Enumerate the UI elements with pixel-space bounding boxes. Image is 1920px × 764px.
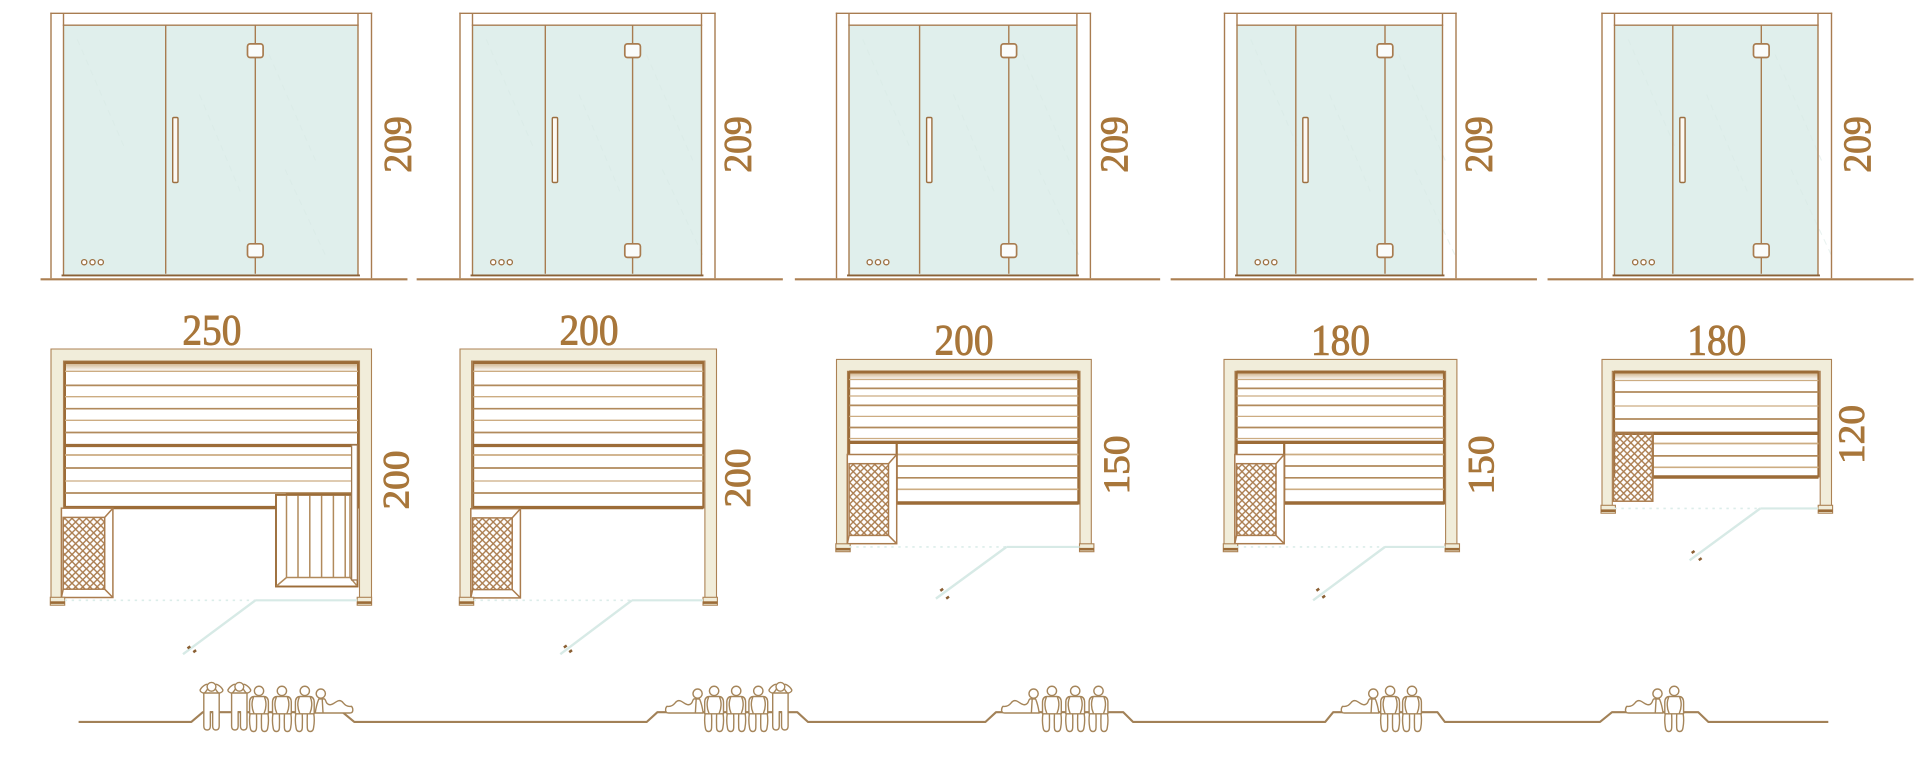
svg-text:209: 209	[1457, 116, 1501, 173]
svg-text:180: 180	[1311, 316, 1370, 364]
svg-text:200: 200	[718, 449, 759, 508]
svg-text:150: 150	[1097, 436, 1138, 495]
svg-text:209: 209	[1092, 116, 1136, 173]
svg-text:209: 209	[1835, 116, 1879, 173]
svg-text:209: 209	[376, 116, 420, 173]
svg-text:200: 200	[560, 306, 619, 354]
svg-text:120: 120	[1832, 405, 1873, 464]
svg-text:250: 250	[182, 306, 241, 354]
svg-text:200: 200	[935, 316, 994, 364]
svg-text:209: 209	[716, 116, 760, 173]
svg-text:200: 200	[377, 451, 418, 510]
svg-text:180: 180	[1687, 316, 1746, 364]
svg-text:150: 150	[1462, 436, 1503, 495]
